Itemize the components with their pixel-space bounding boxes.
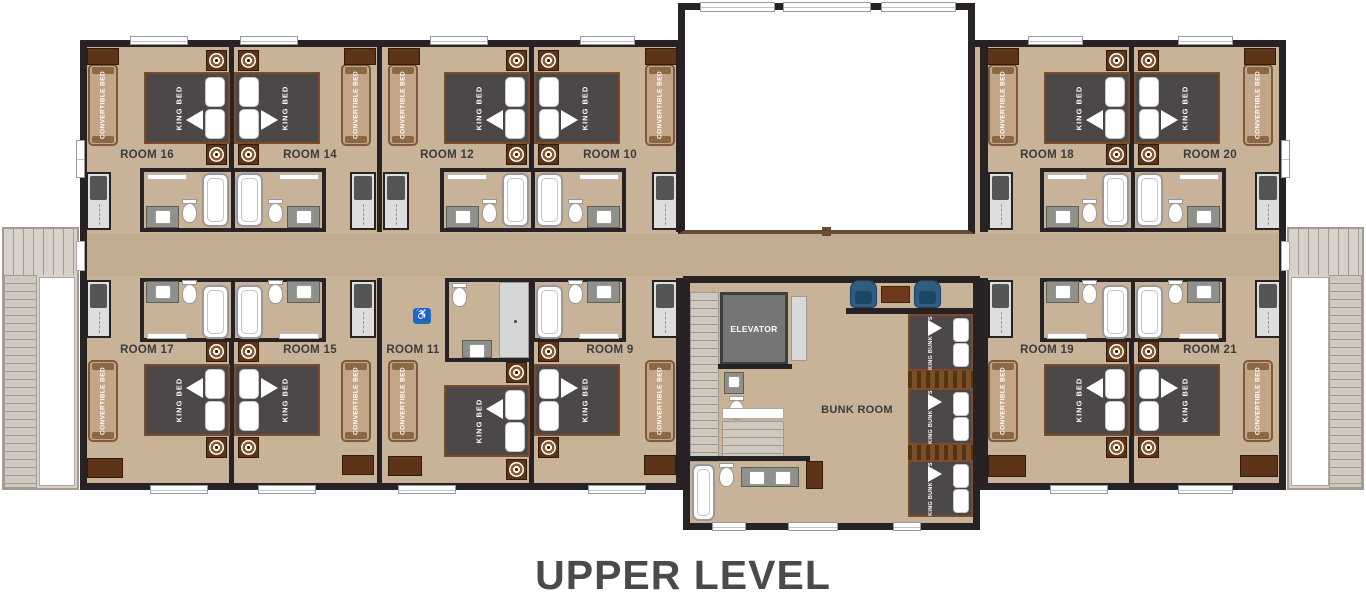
stair-landing (722, 408, 784, 419)
convertible-bed-label: CONVERTIBLE BED (100, 367, 107, 435)
bathtub (692, 464, 715, 521)
convertible-bed: CONVERTIBLE BED (645, 360, 675, 442)
mattress (239, 77, 259, 107)
lamp-icon (1109, 147, 1124, 162)
sink (296, 285, 312, 299)
open-to-below-area (678, 3, 975, 234)
dresser (988, 455, 1026, 477)
lamp-icon (1141, 440, 1156, 455)
bathroom-door (806, 461, 823, 489)
deck-boards (4, 229, 77, 275)
toilet-tank (729, 396, 744, 401)
corridor (87, 234, 1279, 276)
lamp-icon (541, 147, 556, 162)
window (580, 36, 635, 45)
king-bed: KING BED (144, 72, 230, 144)
washer-dryer (656, 284, 674, 308)
nightstand (538, 144, 559, 165)
nightstand (506, 362, 527, 383)
window (712, 522, 746, 531)
sink (296, 210, 312, 224)
room-14-label: ROOM 14 (255, 149, 365, 163)
sink (1055, 285, 1071, 299)
toilet (1168, 284, 1183, 304)
deck-door (1281, 241, 1290, 271)
dresser (645, 48, 677, 65)
convertible-bed: CONVERTIBLE BED (88, 360, 118, 442)
toilet-tank (268, 280, 283, 285)
mattress (205, 369, 225, 399)
nightstand (1106, 144, 1127, 165)
sink (596, 285, 612, 299)
washer-dryer (1259, 284, 1277, 308)
mattress (1105, 109, 1125, 139)
nightstand (238, 50, 259, 71)
toilet (482, 203, 497, 223)
bathtub (202, 285, 229, 339)
nightstand (538, 341, 559, 362)
toilet (568, 284, 583, 304)
convertible-bed-label: CONVERTIBLE BED (400, 71, 407, 139)
closet (350, 172, 376, 230)
mattress (1105, 369, 1125, 399)
room-18-label: ROOM 18 (992, 149, 1102, 163)
king-bed: KING BED (1044, 364, 1130, 436)
blanket-fold (486, 399, 503, 419)
vanity-sink (587, 281, 620, 303)
blanket-fold (186, 378, 203, 398)
room-15-label: ROOM 15 (255, 344, 365, 358)
vanity-sink (446, 206, 479, 228)
toilet-tank (568, 199, 583, 204)
shelf (579, 333, 619, 339)
king-bed-label: KING BED (1181, 86, 1190, 131)
vanity-sink (287, 281, 320, 303)
room-9-label: ROOM 9 (555, 344, 665, 358)
dresser (87, 458, 123, 478)
wall (980, 278, 988, 483)
mattress (539, 109, 559, 139)
washer-dryer (656, 176, 674, 200)
bunk-ladder (908, 371, 973, 388)
mattress (953, 464, 969, 488)
nightstand (206, 50, 227, 71)
lamp-icon (241, 53, 256, 68)
wall (980, 47, 988, 232)
mattress (505, 109, 525, 139)
dresser (987, 48, 1019, 65)
wall (718, 364, 792, 369)
shelf (279, 333, 319, 339)
toilet-tank (1082, 199, 1097, 204)
railing-post (822, 227, 831, 236)
mattress (953, 417, 969, 441)
right-deck (1287, 227, 1364, 490)
convertible-bed-label: CONVERTIBLE BED (400, 367, 407, 435)
washer-dryer (354, 284, 372, 308)
closet (1255, 280, 1281, 338)
mattress (1139, 401, 1159, 431)
shelf (1047, 333, 1087, 339)
toilet (1082, 284, 1097, 304)
sink (775, 471, 791, 485)
vanity-sink (1187, 281, 1220, 303)
vanity-sink (1187, 206, 1220, 228)
toilet-tank (452, 283, 467, 288)
nightstand (1138, 144, 1159, 165)
bathtub (236, 173, 263, 227)
mattress (539, 369, 559, 399)
toilet (1082, 203, 1097, 223)
window (1028, 36, 1083, 45)
dresser (344, 48, 376, 65)
mattress (1105, 77, 1125, 107)
double-vanity (741, 467, 799, 487)
king-bed-label: KING BED (174, 86, 183, 131)
nightstand (238, 144, 259, 165)
king-bed-label: KING BED (581, 86, 590, 131)
lamp-icon (509, 147, 524, 162)
convertible-bed-label: CONVERTIBLE BED (353, 367, 360, 435)
mattress (539, 401, 559, 431)
room-21-label: ROOM 21 (1155, 344, 1265, 358)
shelf (147, 174, 187, 180)
mattress (205, 401, 225, 431)
blanket-fold (1161, 110, 1178, 130)
king-bed-label: KING BED (474, 86, 483, 131)
room-10-label: ROOM 10 (555, 149, 665, 163)
window (1050, 485, 1108, 494)
roll-in-shower (499, 282, 529, 358)
coffee-table (881, 286, 910, 303)
king-bed-label: KING BED (474, 399, 483, 444)
exterior-stairs (4, 275, 37, 488)
toilet-tank (1082, 280, 1097, 285)
shelf (279, 174, 319, 180)
mattress (239, 369, 259, 399)
blanket-fold (261, 378, 278, 398)
washer-dryer (90, 284, 107, 308)
exterior-stairs (1329, 275, 1362, 488)
bathtub (536, 285, 563, 339)
window (258, 485, 316, 494)
king-bed: KING BED (444, 72, 530, 144)
washer-dryer (354, 176, 372, 200)
toilet-tank (568, 280, 583, 285)
window (240, 36, 298, 45)
shelf (579, 174, 619, 180)
toilet (452, 287, 467, 307)
closet (86, 172, 111, 230)
nightstand (1106, 341, 1127, 362)
page-title: UPPER LEVEL (0, 552, 1366, 599)
toilet (182, 284, 197, 304)
convertible-bed-label: CONVERTIBLE BED (353, 71, 360, 139)
vanity-sink (146, 281, 179, 303)
sink (1196, 285, 1212, 299)
blanket-fold (561, 110, 578, 130)
mattress (953, 318, 969, 342)
shelf (1047, 174, 1087, 180)
sink (749, 471, 765, 485)
bathtub (1102, 285, 1129, 339)
bathtub (1136, 285, 1163, 339)
convertible-bed-label: CONVERTIBLE BED (657, 71, 664, 139)
lamp-icon (509, 365, 524, 380)
shelf (147, 333, 187, 339)
nightstand (538, 437, 559, 458)
dresser (342, 455, 374, 475)
nightstand (506, 144, 527, 165)
king-bunk-bed: KING BUNK BED'S (908, 388, 973, 445)
window (76, 140, 85, 178)
mattress (1139, 369, 1159, 399)
mattress (505, 390, 525, 420)
nightstand (206, 437, 227, 458)
nightstand (538, 50, 559, 71)
sink (1055, 210, 1071, 224)
toilet-tank (482, 199, 497, 204)
floor-plan: ROOM 16 ROOM 14 ROOM 12 ROOM 10 ROOM 18 … (0, 0, 1366, 615)
vanity-sink (724, 372, 744, 394)
closet (988, 172, 1013, 230)
king-bed: KING BED (444, 385, 530, 457)
mattress (239, 109, 259, 139)
convertible-bed: CONVERTIBLE BED (1243, 64, 1273, 146)
washer-dryer (992, 284, 1009, 308)
window (881, 2, 956, 12)
toilet (719, 467, 734, 487)
sink (728, 376, 740, 388)
washer-dryer (1259, 176, 1277, 200)
vanity-sink (287, 206, 320, 228)
closet (383, 172, 409, 230)
bathtub (1136, 173, 1163, 227)
mattress (505, 422, 525, 452)
window (130, 36, 188, 45)
sink (455, 210, 471, 224)
washer-dryer (992, 176, 1009, 200)
blanket-fold (1161, 378, 1178, 398)
lounge-chair (850, 280, 877, 308)
room-19-label: ROOM 19 (992, 344, 1102, 358)
shelf (1179, 333, 1219, 339)
window (1281, 140, 1290, 178)
lamp-icon (1141, 344, 1156, 359)
window (700, 2, 775, 12)
nightstand (1138, 341, 1159, 362)
bunk-room-label: BUNK ROOM (812, 404, 902, 416)
window (588, 485, 646, 494)
elevator: ELEVATOR (720, 292, 788, 365)
sink (469, 344, 485, 358)
window (788, 522, 838, 531)
lamp-icon (241, 147, 256, 162)
window (430, 36, 488, 45)
lamp-icon (1141, 53, 1156, 68)
vanity-sink (587, 206, 620, 228)
sink (155, 285, 171, 299)
mattress (953, 392, 969, 416)
king-bed: KING BED (144, 364, 230, 436)
wall (690, 456, 810, 461)
closet (652, 172, 678, 230)
toilet (268, 284, 283, 304)
toilet (568, 203, 583, 223)
elevator-label: ELEVATOR (730, 324, 777, 334)
bathtub (502, 173, 529, 227)
window (398, 485, 456, 494)
lamp-icon (241, 440, 256, 455)
toilet-tank (1168, 199, 1183, 204)
blanket-fold (1086, 110, 1103, 130)
dresser (1240, 455, 1278, 477)
closet (652, 280, 678, 338)
lounge-chair (914, 280, 941, 308)
accessible-icon: ♿ (413, 308, 431, 324)
lamp-icon (509, 53, 524, 68)
window (150, 485, 208, 494)
toilet-tank (719, 463, 734, 468)
window (893, 522, 921, 531)
king-bed-label: KING BED (1181, 378, 1190, 423)
bathtub (202, 173, 229, 227)
washer-dryer (387, 176, 405, 200)
mattress (1139, 77, 1159, 107)
king-bed-label: KING BED (174, 378, 183, 423)
room-17-label: ROOM 17 (92, 344, 202, 358)
closet (1255, 172, 1281, 230)
closet (350, 280, 376, 338)
convertible-bed-label: CONVERTIBLE BED (1000, 71, 1007, 139)
blanket-fold (261, 110, 278, 130)
dresser (388, 456, 422, 476)
king-bed: KING BED (1044, 72, 1130, 144)
washer-dryer (90, 176, 107, 200)
toilet (268, 203, 283, 223)
wall (377, 278, 382, 483)
bathtub (536, 173, 563, 227)
king-bed: KING BED (1134, 72, 1220, 144)
convertible-bed-label: CONVERTIBLE BED (657, 367, 664, 435)
left-deck (2, 227, 79, 490)
deck-landing (1291, 277, 1329, 486)
nightstand (206, 341, 227, 362)
king-bunk-bed-label: KING BUNK BED'S (928, 462, 934, 516)
sink (155, 210, 171, 224)
convertible-bed: CONVERTIBLE BED (341, 360, 371, 442)
convertible-bed: CONVERTIBLE BED (341, 64, 371, 146)
convertible-bed-label: CONVERTIBLE BED (1255, 71, 1262, 139)
bathtub (1102, 173, 1129, 227)
convertible-bed: CONVERTIBLE BED (388, 360, 418, 442)
lamp-icon (1109, 440, 1124, 455)
mattress (1139, 109, 1159, 139)
deck-door (76, 241, 85, 271)
blanket-fold (1086, 378, 1103, 398)
mattress (953, 343, 969, 367)
room-16-label: ROOM 16 (92, 149, 202, 163)
sink (596, 210, 612, 224)
mattress (205, 77, 225, 107)
blanket-fold (186, 110, 203, 130)
toilet-tank (182, 199, 197, 204)
toilet-tank (182, 280, 197, 285)
lamp-icon (1141, 147, 1156, 162)
toilet (1168, 203, 1183, 223)
dresser (87, 48, 119, 65)
interior-stairs (690, 292, 719, 462)
nightstand (1138, 437, 1159, 458)
elevator-door (791, 296, 807, 361)
lamp-icon (209, 344, 224, 359)
convertible-bed: CONVERTIBLE BED (988, 360, 1018, 442)
blanket-fold (486, 110, 503, 130)
toilet-tank (268, 199, 283, 204)
window (1178, 485, 1233, 494)
nightstand (506, 459, 527, 480)
convertible-bed: CONVERTIBLE BED (388, 64, 418, 146)
convertible-bed-label: CONVERTIBLE BED (1000, 367, 1007, 435)
mattress (539, 77, 559, 107)
lamp-icon (541, 344, 556, 359)
lamp-icon (541, 53, 556, 68)
king-bed-label: KING BED (1074, 378, 1083, 423)
convertible-bed-label: CONVERTIBLE BED (1255, 367, 1262, 435)
vanity-sink (1046, 206, 1079, 228)
shelf (1179, 174, 1219, 180)
dresser (388, 48, 420, 65)
convertible-bed: CONVERTIBLE BED (1243, 360, 1273, 442)
bathtub (236, 285, 263, 339)
lamp-icon (1109, 53, 1124, 68)
king-bunk-bed: KING BUNK BED'S (908, 314, 973, 371)
convertible-bed-label: CONVERTIBLE BED (100, 71, 107, 139)
closet (86, 280, 111, 338)
nightstand (238, 437, 259, 458)
mattress (205, 109, 225, 139)
king-bed: KING BED (234, 364, 320, 436)
nightstand (206, 144, 227, 165)
mattress (1105, 401, 1125, 431)
lamp-icon (241, 344, 256, 359)
nightstand (506, 50, 527, 71)
nightstand (1106, 437, 1127, 458)
nightstand (1106, 50, 1127, 71)
lamp-icon (509, 462, 524, 477)
king-bed-label: KING BED (581, 378, 590, 423)
lamp-icon (209, 147, 224, 162)
closet (988, 280, 1013, 338)
window (783, 2, 871, 12)
king-bed-label: KING BED (1074, 86, 1083, 131)
deck-landing (39, 277, 75, 486)
lamp-icon (209, 53, 224, 68)
vanity-sink (146, 206, 179, 228)
convertible-bed: CONVERTIBLE BED (88, 64, 118, 146)
convertible-bed: CONVERTIBLE BED (645, 64, 675, 146)
window (1178, 36, 1233, 45)
room-11-label: ROOM 11 (358, 344, 468, 358)
vanity-sink (1046, 281, 1079, 303)
toilet-tank (1168, 280, 1183, 285)
deck-boards (1289, 229, 1362, 275)
convertible-bed: CONVERTIBLE BED (988, 64, 1018, 146)
king-bunk-bed-label: KING BUNK BED'S (928, 390, 934, 444)
wall (377, 47, 382, 232)
sink (1196, 210, 1212, 224)
interior-stairs (722, 421, 784, 461)
